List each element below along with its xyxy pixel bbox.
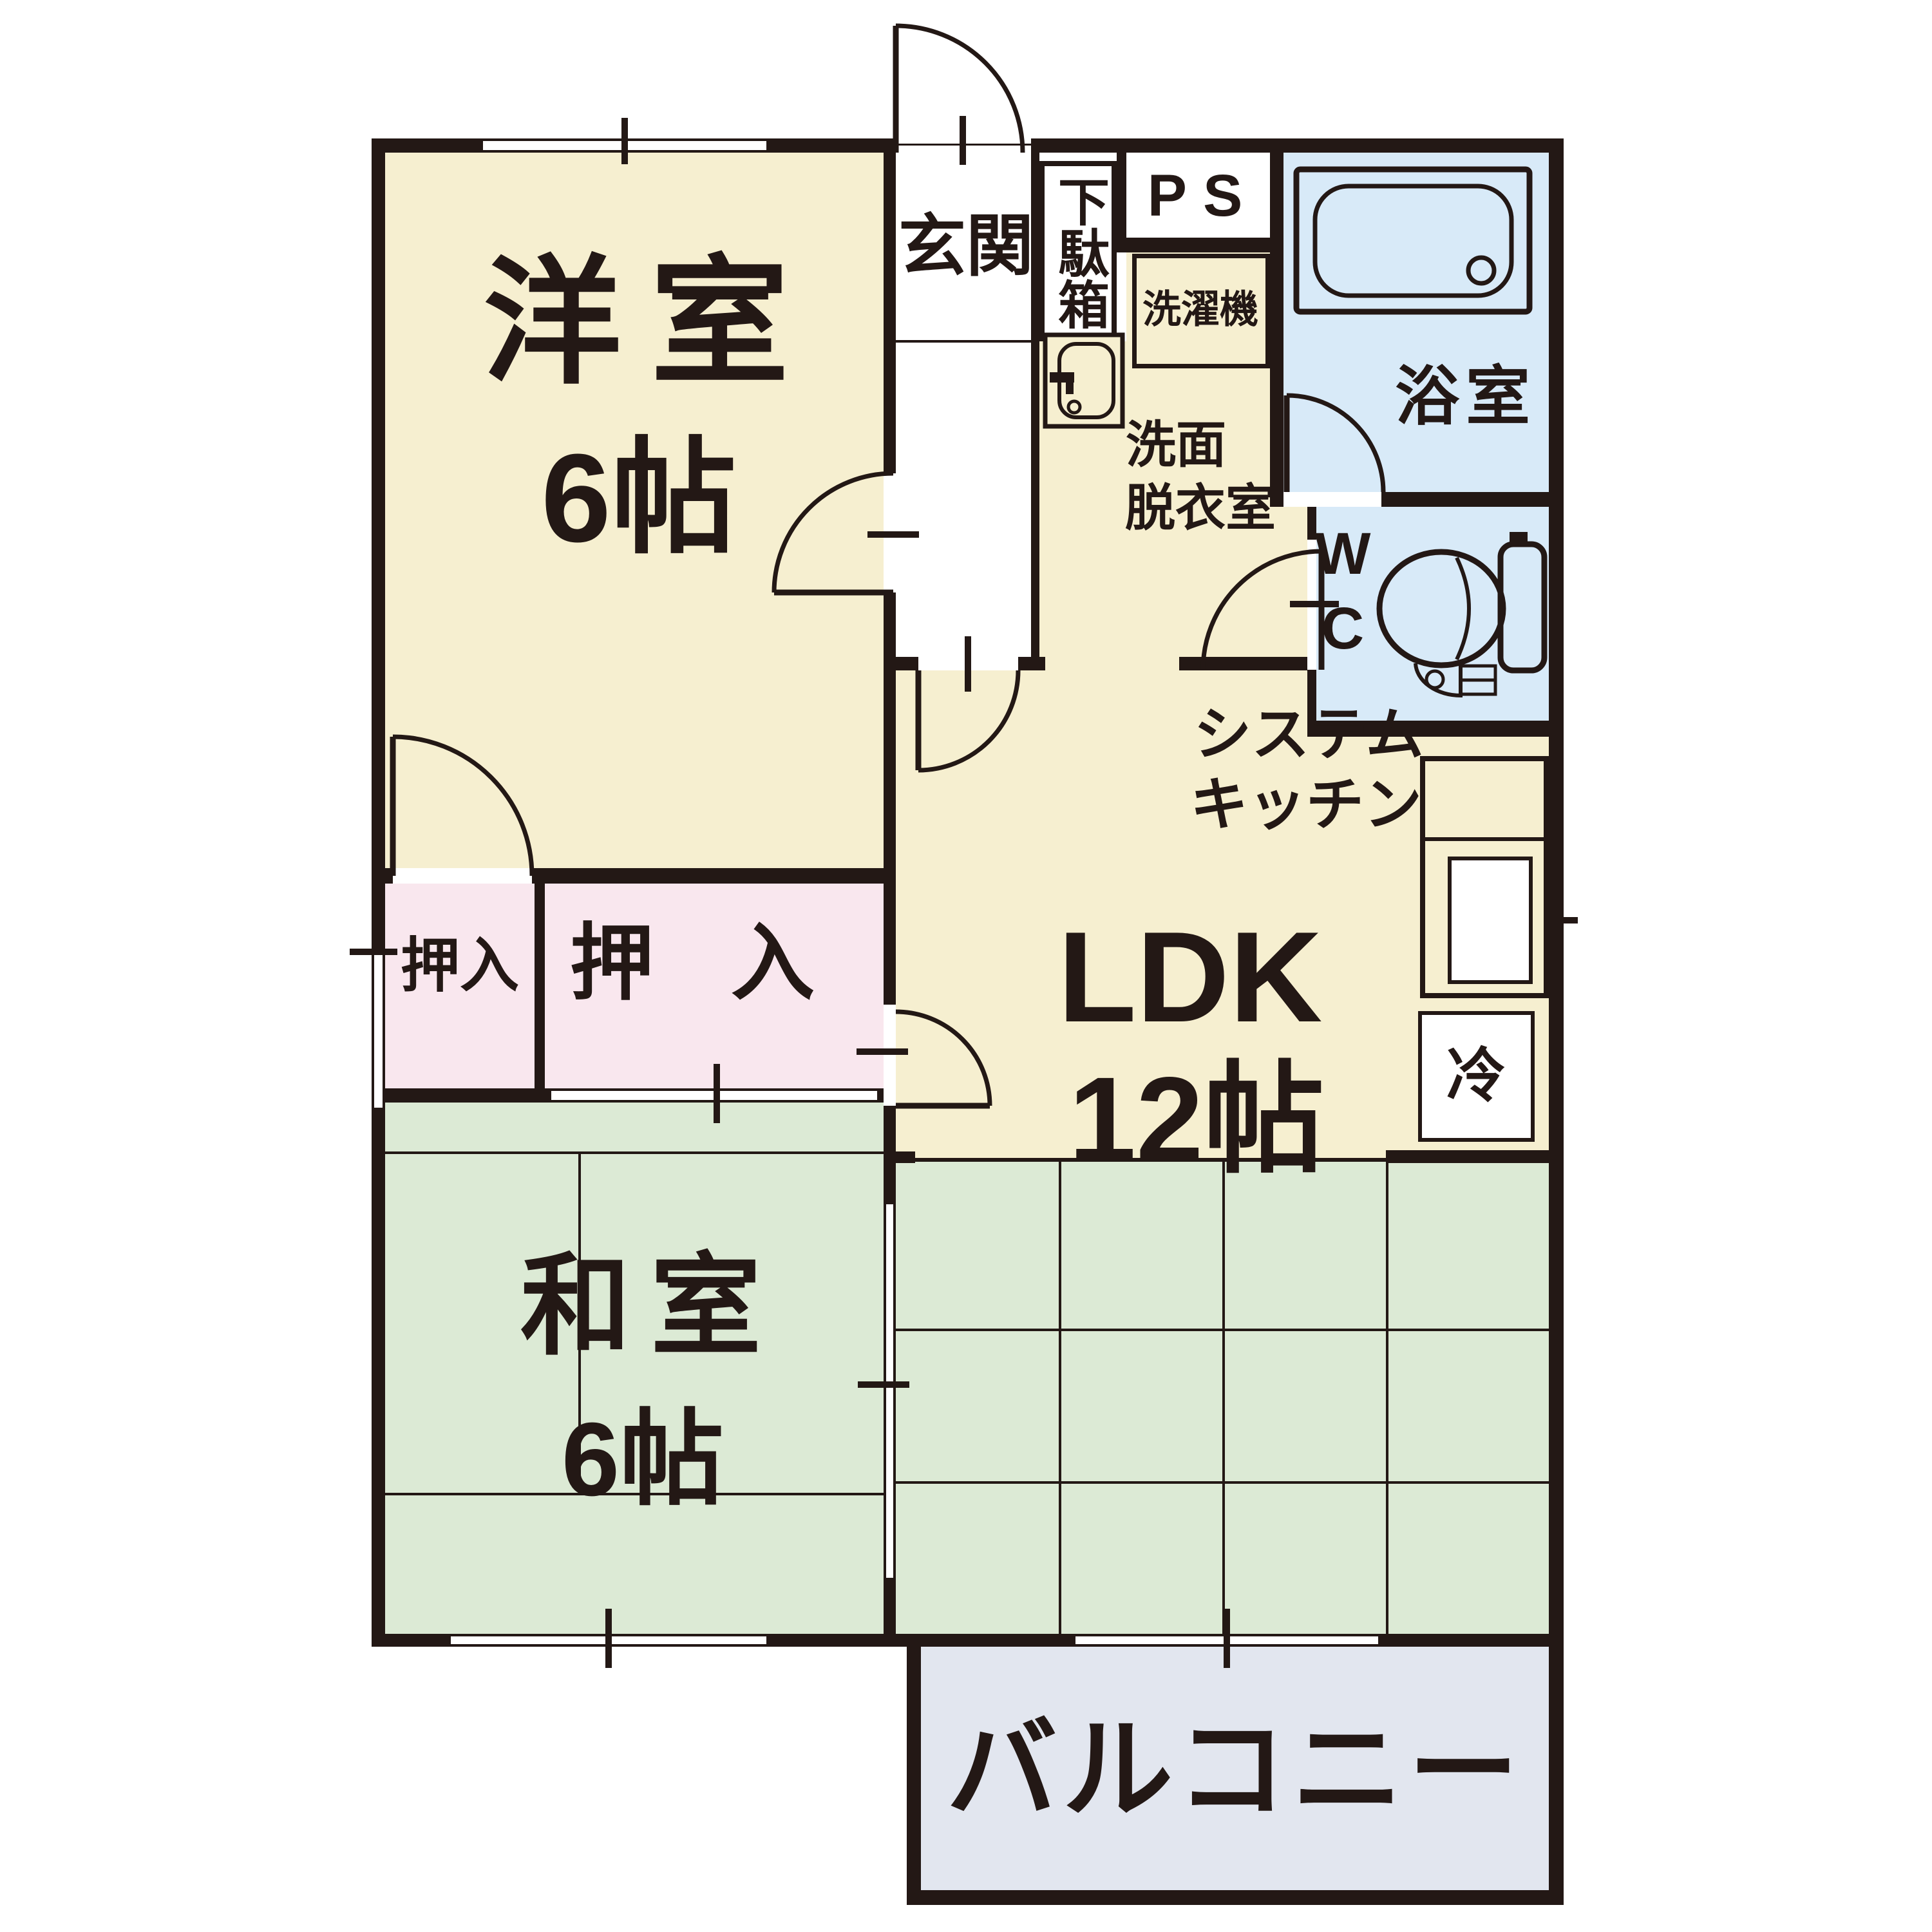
toilet-icon — [1379, 532, 1544, 696]
kitchen-label-line1: システム — [1193, 706, 1423, 764]
japanese-room-label: 和室 — [520, 1251, 781, 1362]
ldk-washitsu-door-icon — [896, 1012, 990, 1106]
wc-door-icon — [1203, 551, 1321, 670]
washroom-label-line1: 洗面 — [1126, 419, 1226, 469]
shoe-cabinet-label: 下駄箱 — [1054, 175, 1105, 330]
western-room-label: 洋室 — [483, 253, 818, 392]
ldk-size: 12帖 — [1068, 1059, 1324, 1180]
refrigerator-label: 冷 — [1446, 1046, 1506, 1106]
floor-plan: 洋室 6帖 和室 6帖 LDK 12帖 玄関 下駄箱 PS 洗濯機 浴室 W C… — [0, 0, 1932, 1932]
western-room-size: 6帖 — [541, 436, 736, 562]
closet-large-label: 押入 — [570, 921, 892, 1005]
japanese-room-size: 6帖 — [562, 1408, 724, 1512]
kitchen-label-line2: キッチン — [1190, 776, 1422, 834]
entrance-door-icon — [896, 26, 1023, 153]
bathtub-icon — [1296, 169, 1529, 312]
bathroom-label: 浴室 — [1395, 365, 1537, 429]
wc-label-line2: C — [1321, 599, 1364, 658]
bathroom-door-icon — [1287, 395, 1383, 492]
ps-label: PS — [1148, 166, 1259, 225]
doors-and-fixtures-layer — [0, 0, 1932, 1932]
ldk-label: LDK — [1057, 913, 1322, 1042]
balcony-label: バルコニー — [947, 1715, 1524, 1826]
genkan-label: 玄関 — [898, 213, 1034, 280]
washbasin-icon — [1045, 335, 1122, 426]
hallway-ldk-door-icon — [918, 670, 1018, 770]
closet-small-label: 押入 — [401, 936, 519, 996]
closet-small-door-icon — [393, 737, 532, 876]
washroom-label-line2: 脱衣室 — [1125, 482, 1276, 533]
wc-label-line1: W — [1315, 524, 1371, 583]
western-room-door-icon — [774, 473, 893, 592]
washing-machine-label: 洗濯機 — [1142, 290, 1258, 329]
